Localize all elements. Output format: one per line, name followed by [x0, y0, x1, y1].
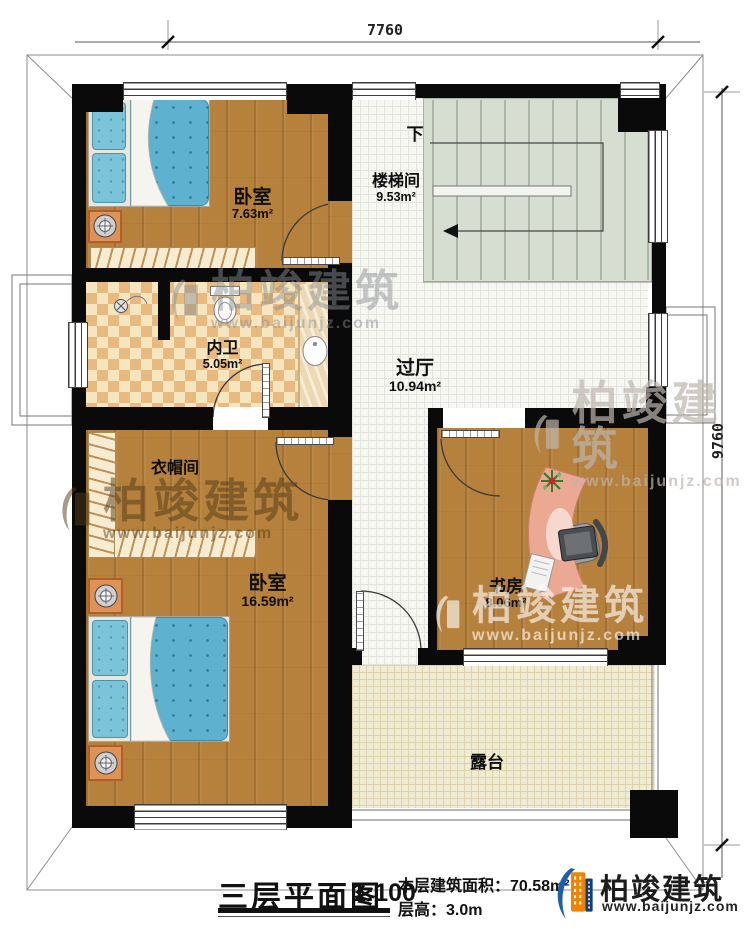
window — [648, 313, 668, 387]
door-arc — [441, 439, 500, 496]
window — [134, 804, 287, 830]
door-opening — [328, 201, 352, 263]
wall — [72, 407, 213, 430]
wall — [648, 423, 666, 665]
door-leaf — [441, 430, 500, 438]
room-area-hall: 10.94m² — [378, 379, 452, 394]
shower-head — [115, 296, 148, 312]
room-label-bedroom2: 卧室 — [220, 574, 315, 594]
stair-down-label: 下 — [404, 126, 426, 144]
floor-area-text: 本层建筑面积：70.58m² — [398, 872, 570, 896]
window — [68, 322, 88, 388]
door-arc — [276, 442, 334, 500]
room-area-stairwell: 9.53m² — [350, 191, 442, 204]
wall — [328, 500, 352, 806]
door-opening — [328, 437, 352, 500]
bay-window-outline — [12, 275, 715, 425]
room-label-stairwell: 楼梯间 — [350, 174, 442, 191]
wall — [268, 407, 328, 430]
door-leaf — [276, 437, 334, 445]
door-leaf — [282, 257, 340, 265]
wall — [328, 98, 352, 201]
room-area-bedroom2: 16.59m² — [220, 594, 315, 609]
room-label-cloakroom: 衣帽间 — [140, 461, 210, 478]
wall-shower-partition — [158, 282, 170, 340]
brand-website: www.baijunjz.com — [602, 898, 739, 914]
room-label-bedroom1: 卧室 — [205, 188, 300, 208]
floor-height-text: 层高：3.0m — [398, 896, 482, 920]
wall — [525, 408, 652, 428]
room-label-study: 书房 — [475, 578, 537, 596]
window — [648, 130, 668, 243]
toilet — [214, 297, 236, 323]
window — [123, 82, 287, 100]
nightstand-lamp — [94, 215, 117, 774]
room-area-study: 8.06m² — [472, 596, 540, 610]
wash-basin — [303, 337, 327, 366]
window — [620, 82, 660, 98]
wall — [328, 263, 352, 437]
potted-plant — [541, 470, 563, 492]
wall-stub — [418, 648, 437, 665]
room-area-bathroom: 5.05m² — [190, 358, 255, 371]
computer-monitor — [558, 526, 598, 562]
door-leaf — [262, 363, 270, 418]
brand-logo: 柏竣建筑 www.baijunjz.com — [548, 862, 748, 926]
wall — [86, 268, 328, 282]
dimension-height-label: 9760 — [709, 413, 727, 469]
title-underline-thin — [218, 916, 390, 917]
door-arc — [361, 591, 421, 651]
wall — [428, 408, 443, 428]
window — [463, 648, 608, 666]
brand-logo-icon — [548, 864, 598, 924]
window — [352, 82, 416, 100]
room-label-hall: 过厅 — [380, 359, 450, 379]
wall — [428, 428, 437, 665]
dimension-width-label: 7760 — [345, 21, 425, 39]
wall — [72, 84, 86, 827]
door-arc — [213, 364, 266, 417]
floor-plan-canvas: 卧室 7.63m² 楼梯间 9.53m² 下 内卫 5.05m² 过厅 10.9… — [0, 0, 750, 929]
room-area-bedroom1: 7.63m² — [205, 207, 300, 221]
title-underline-thick — [218, 908, 390, 913]
stair-handrail — [433, 186, 571, 196]
door-leaf — [356, 591, 364, 651]
room-label-bathroom: 内卫 — [195, 341, 250, 358]
dimension-right — [704, 86, 740, 878]
room-label-terrace: 露台 — [452, 754, 522, 772]
terrace-column — [630, 790, 678, 838]
